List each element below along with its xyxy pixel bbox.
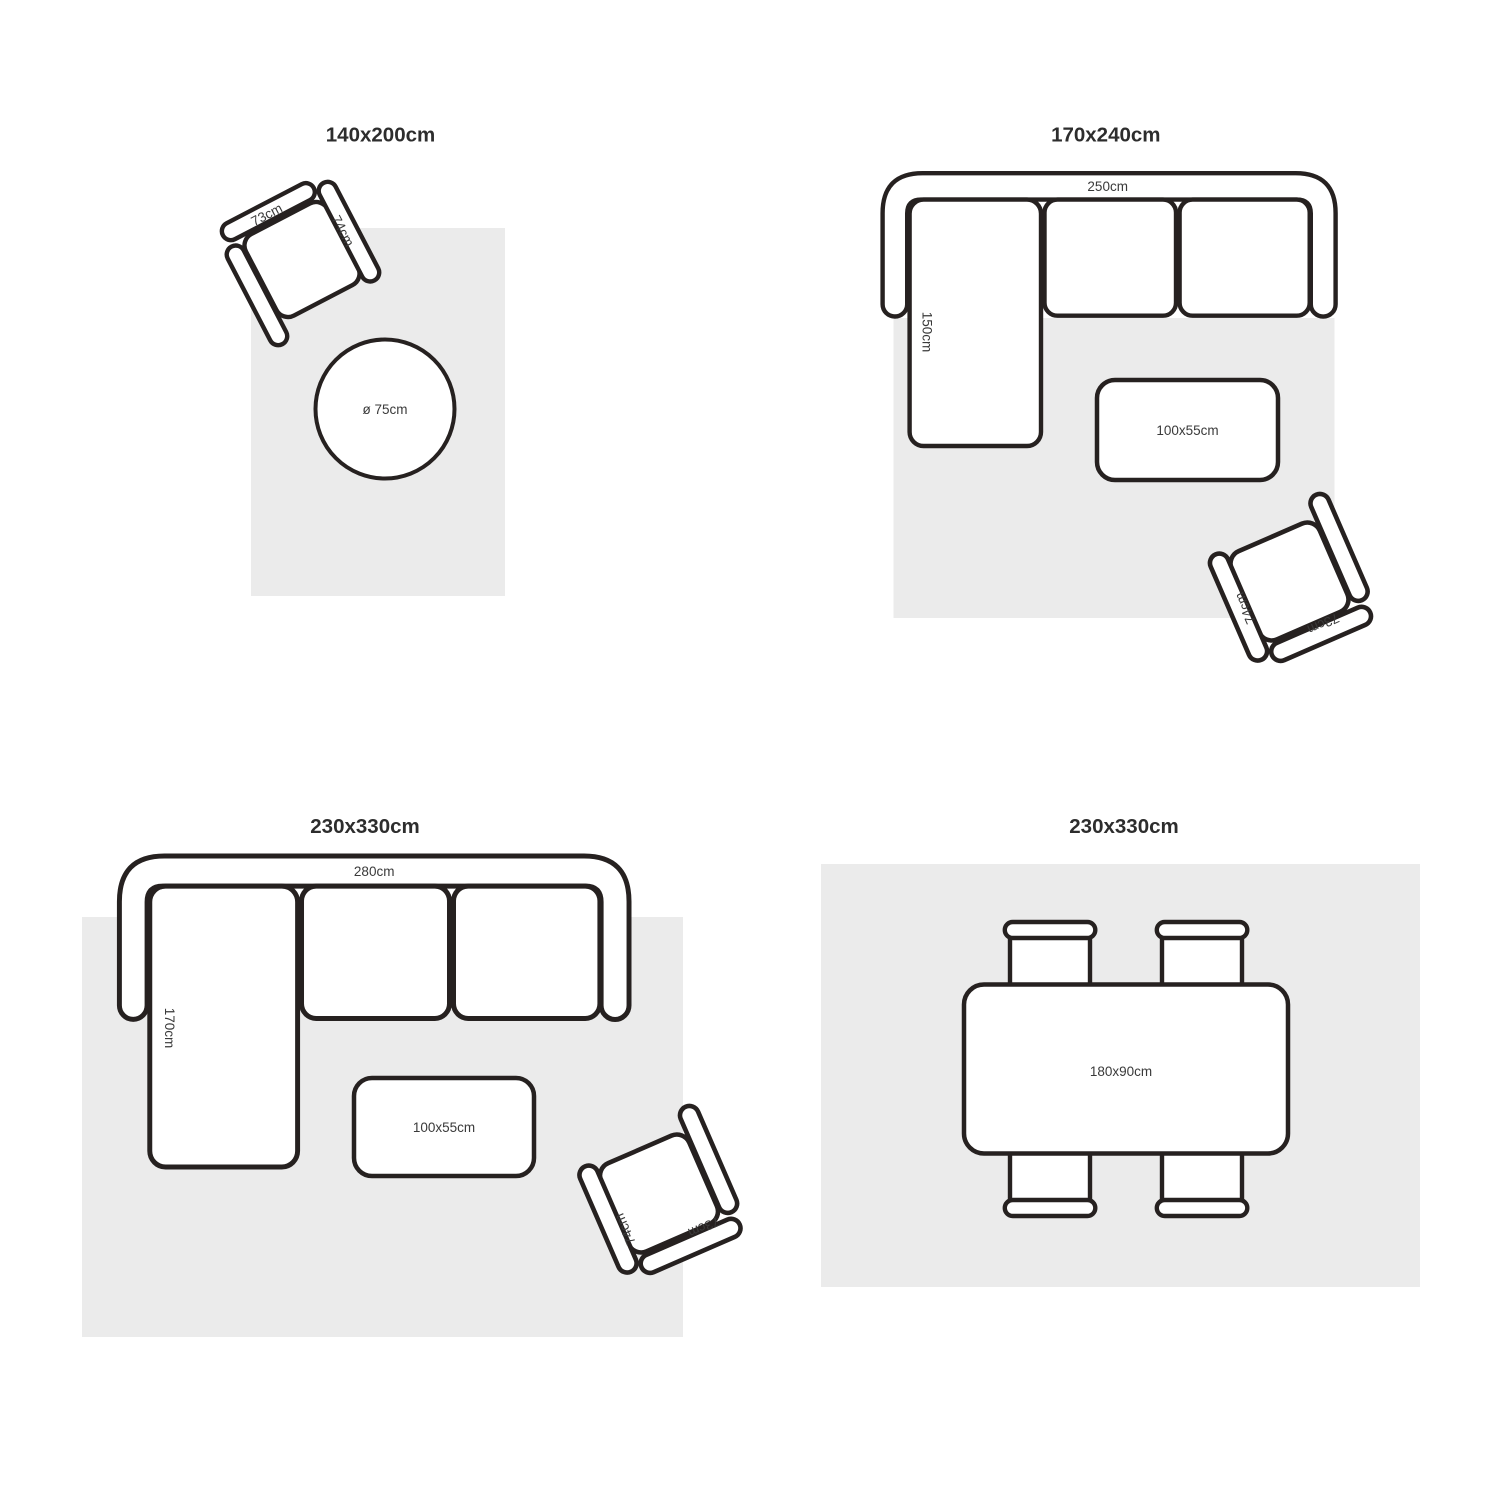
svg-text:250cm: 250cm (1087, 179, 1128, 194)
svg-text:230x330cm: 230x330cm (1069, 815, 1178, 838)
svg-text:100x55cm: 100x55cm (413, 1120, 475, 1135)
svg-text:280cm: 280cm (354, 864, 395, 879)
svg-text:150cm: 150cm (920, 312, 935, 353)
svg-text:170cm: 170cm (162, 1008, 177, 1049)
svg-text:180x90cm: 180x90cm (1090, 1064, 1152, 1079)
svg-text:230x330cm: 230x330cm (310, 815, 419, 838)
svg-text:140x200cm: 140x200cm (326, 123, 435, 146)
svg-text:170x240cm: 170x240cm (1051, 124, 1160, 147)
svg-text:ø 75cm: ø 75cm (362, 402, 407, 417)
svg-text:100x55cm: 100x55cm (1156, 423, 1218, 438)
